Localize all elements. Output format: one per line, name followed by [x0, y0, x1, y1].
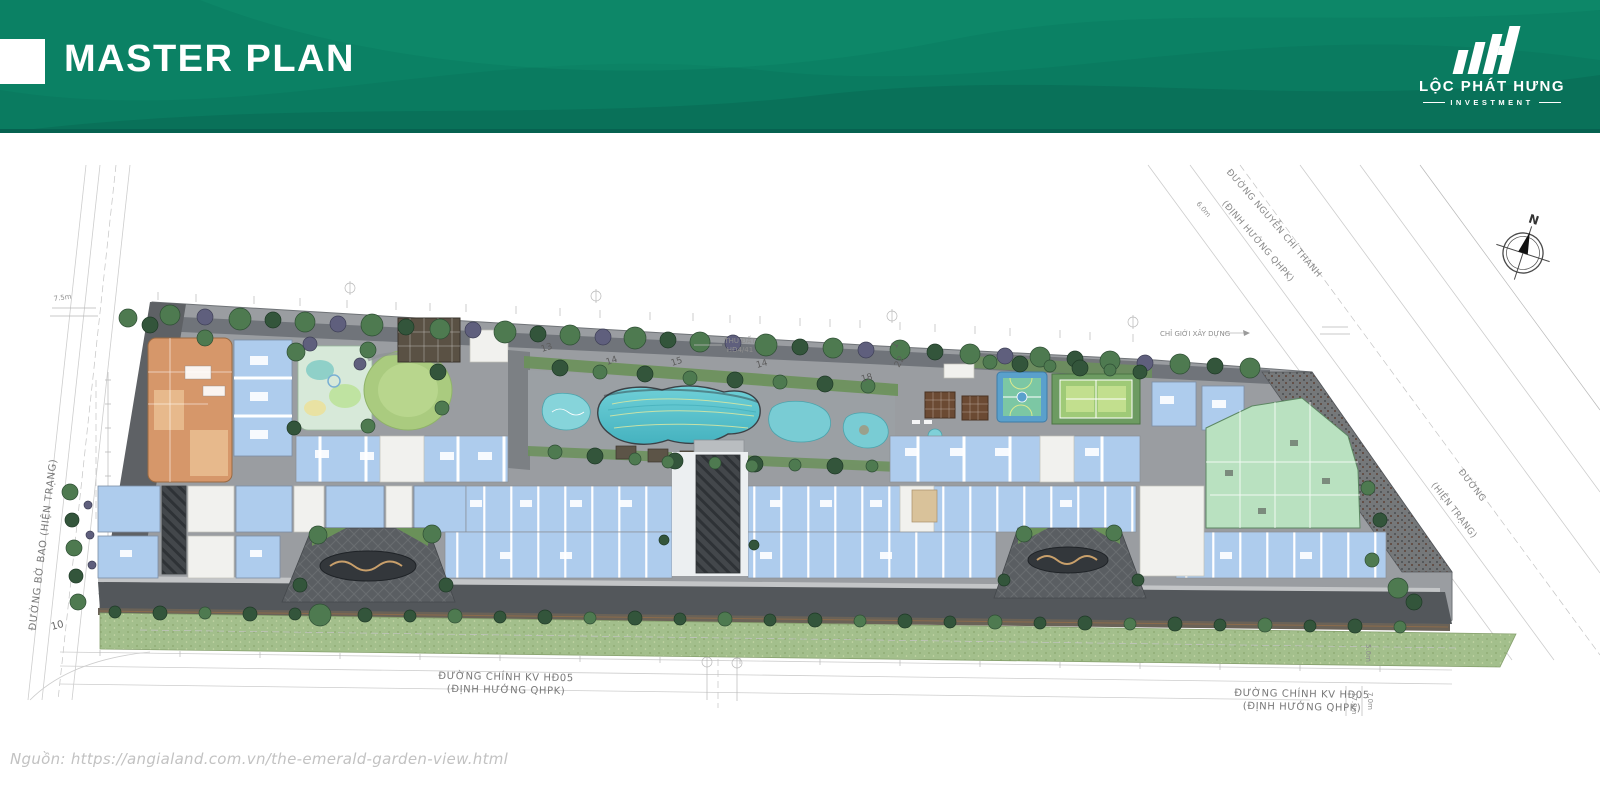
logo-rule-right [1539, 102, 1561, 103]
dim-right-2: 17.0m [1350, 692, 1358, 715]
slide: ĐƯỜNG BỜ BAO (HIỆN TRẠNG) ĐƯỜNG NGUYỄN C… [0, 0, 1600, 800]
road-label-bottomleft-2: (ĐỊNH HƯỚNG QHPK) [447, 682, 566, 697]
logo-tagline-row: INVESTMENT [1412, 98, 1572, 107]
road-label-left: ĐƯỜNG BỜ BAO (HIỆN TRẠNG) [26, 458, 60, 631]
header-banner: MASTER PLAN [0, 0, 1600, 133]
source-citation: Nguồn: https://angialand.com.vn/the-emer… [10, 750, 508, 768]
setback-note: CHỈ GIỚI XÂY DỰNG [1160, 329, 1230, 338]
dim-top-right: 6.0m [1194, 200, 1212, 219]
dim-right-3: 7.0m [1366, 692, 1374, 710]
land-note-2: HĐ4/41 [727, 346, 753, 354]
company-logo: LỘC PHÁT HƯNG INVESTMENT [1412, 24, 1572, 107]
tennis-court [1052, 374, 1140, 424]
dim-top-left: 7.5m [53, 293, 72, 303]
road-label-bottomright-1: ĐƯỜNG CHÍNH KV HĐ05 [1234, 686, 1370, 701]
dim-right-1: 5.0m [1364, 644, 1372, 662]
land-note-1: THU ĐẤT [723, 335, 756, 345]
basketball-court [997, 372, 1047, 422]
leisure-pool [769, 401, 831, 442]
tan-unit [912, 490, 937, 522]
compass-rose: N [1488, 204, 1563, 288]
page-title: MASTER PLAN [64, 38, 355, 81]
logo-tagline: INVESTMENT [1450, 98, 1533, 107]
ramp [162, 486, 186, 574]
road-label-bottomleft-1: ĐƯỜNG CHÍNH KV HĐ05 [438, 669, 574, 684]
pavilion [925, 392, 955, 418]
entrance-plaza-right [994, 528, 1146, 598]
compass-needle [1518, 231, 1534, 255]
road-label-right-1: ĐƯỜNG [1456, 466, 1489, 504]
kids-pool [542, 393, 590, 430]
pavilion [962, 396, 988, 420]
logo-bars-icon [1437, 24, 1547, 76]
main-gate [672, 452, 748, 576]
logo-company-name: LỘC PHÁT HƯNG [1412, 78, 1572, 95]
title-accent-square [0, 39, 45, 84]
compass-north-label: N [1527, 212, 1541, 228]
logo-rule-left [1423, 102, 1445, 103]
corner-number: 10 [50, 619, 65, 633]
road-label-bottomright-2: (ĐỊNH HƯỚNG QHPK) [1243, 699, 1362, 714]
